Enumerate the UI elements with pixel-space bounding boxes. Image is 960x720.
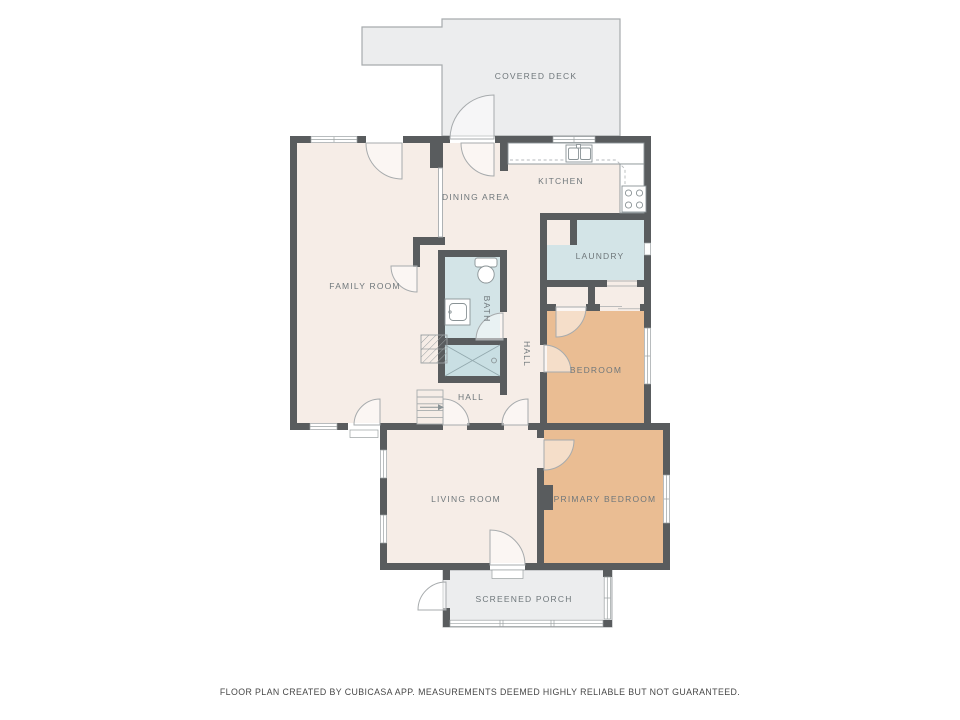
chimney-hatch — [421, 335, 447, 363]
floor-plan-canvas: COVERED DECK KITCHEN DINING AREA FAMILY … — [0, 0, 960, 720]
room-label-primary-bedroom: PRIMARY BEDROOM — [554, 494, 657, 504]
room-label-bath: BATH — [482, 296, 492, 323]
vanity-sink-fixture — [445, 299, 470, 325]
room-label-family-room: FAMILY ROOM — [329, 281, 400, 291]
room-label-covered-deck: COVERED DECK — [495, 71, 577, 81]
room-label-hall-lower: HALL — [458, 392, 484, 402]
fireplace-bump — [537, 485, 553, 510]
half-wall-divider — [439, 168, 443, 237]
floor-plan: COVERED DECK KITCHEN DINING AREA FAMILY … — [0, 0, 960, 720]
footer-disclaimer: FLOOR PLAN CREATED BY CUBICASA APP. MEAS… — [220, 687, 740, 697]
kitchen-sink-fixture — [566, 145, 592, 163]
room-label-hall-upper: HALL — [522, 341, 532, 367]
room-label-bedroom: BEDROOM — [570, 365, 622, 375]
room-label-living-room: LIVING ROOM — [431, 494, 501, 504]
room-label-kitchen: KITCHEN — [538, 176, 584, 186]
staircase-fixture — [417, 390, 444, 424]
room-label-dining-area: DINING AREA — [442, 192, 510, 202]
room-label-laundry: LAUNDRY — [576, 251, 625, 261]
room-label-screened-porch: SCREENED PORCH — [475, 594, 572, 604]
stove-fixture — [622, 186, 646, 212]
